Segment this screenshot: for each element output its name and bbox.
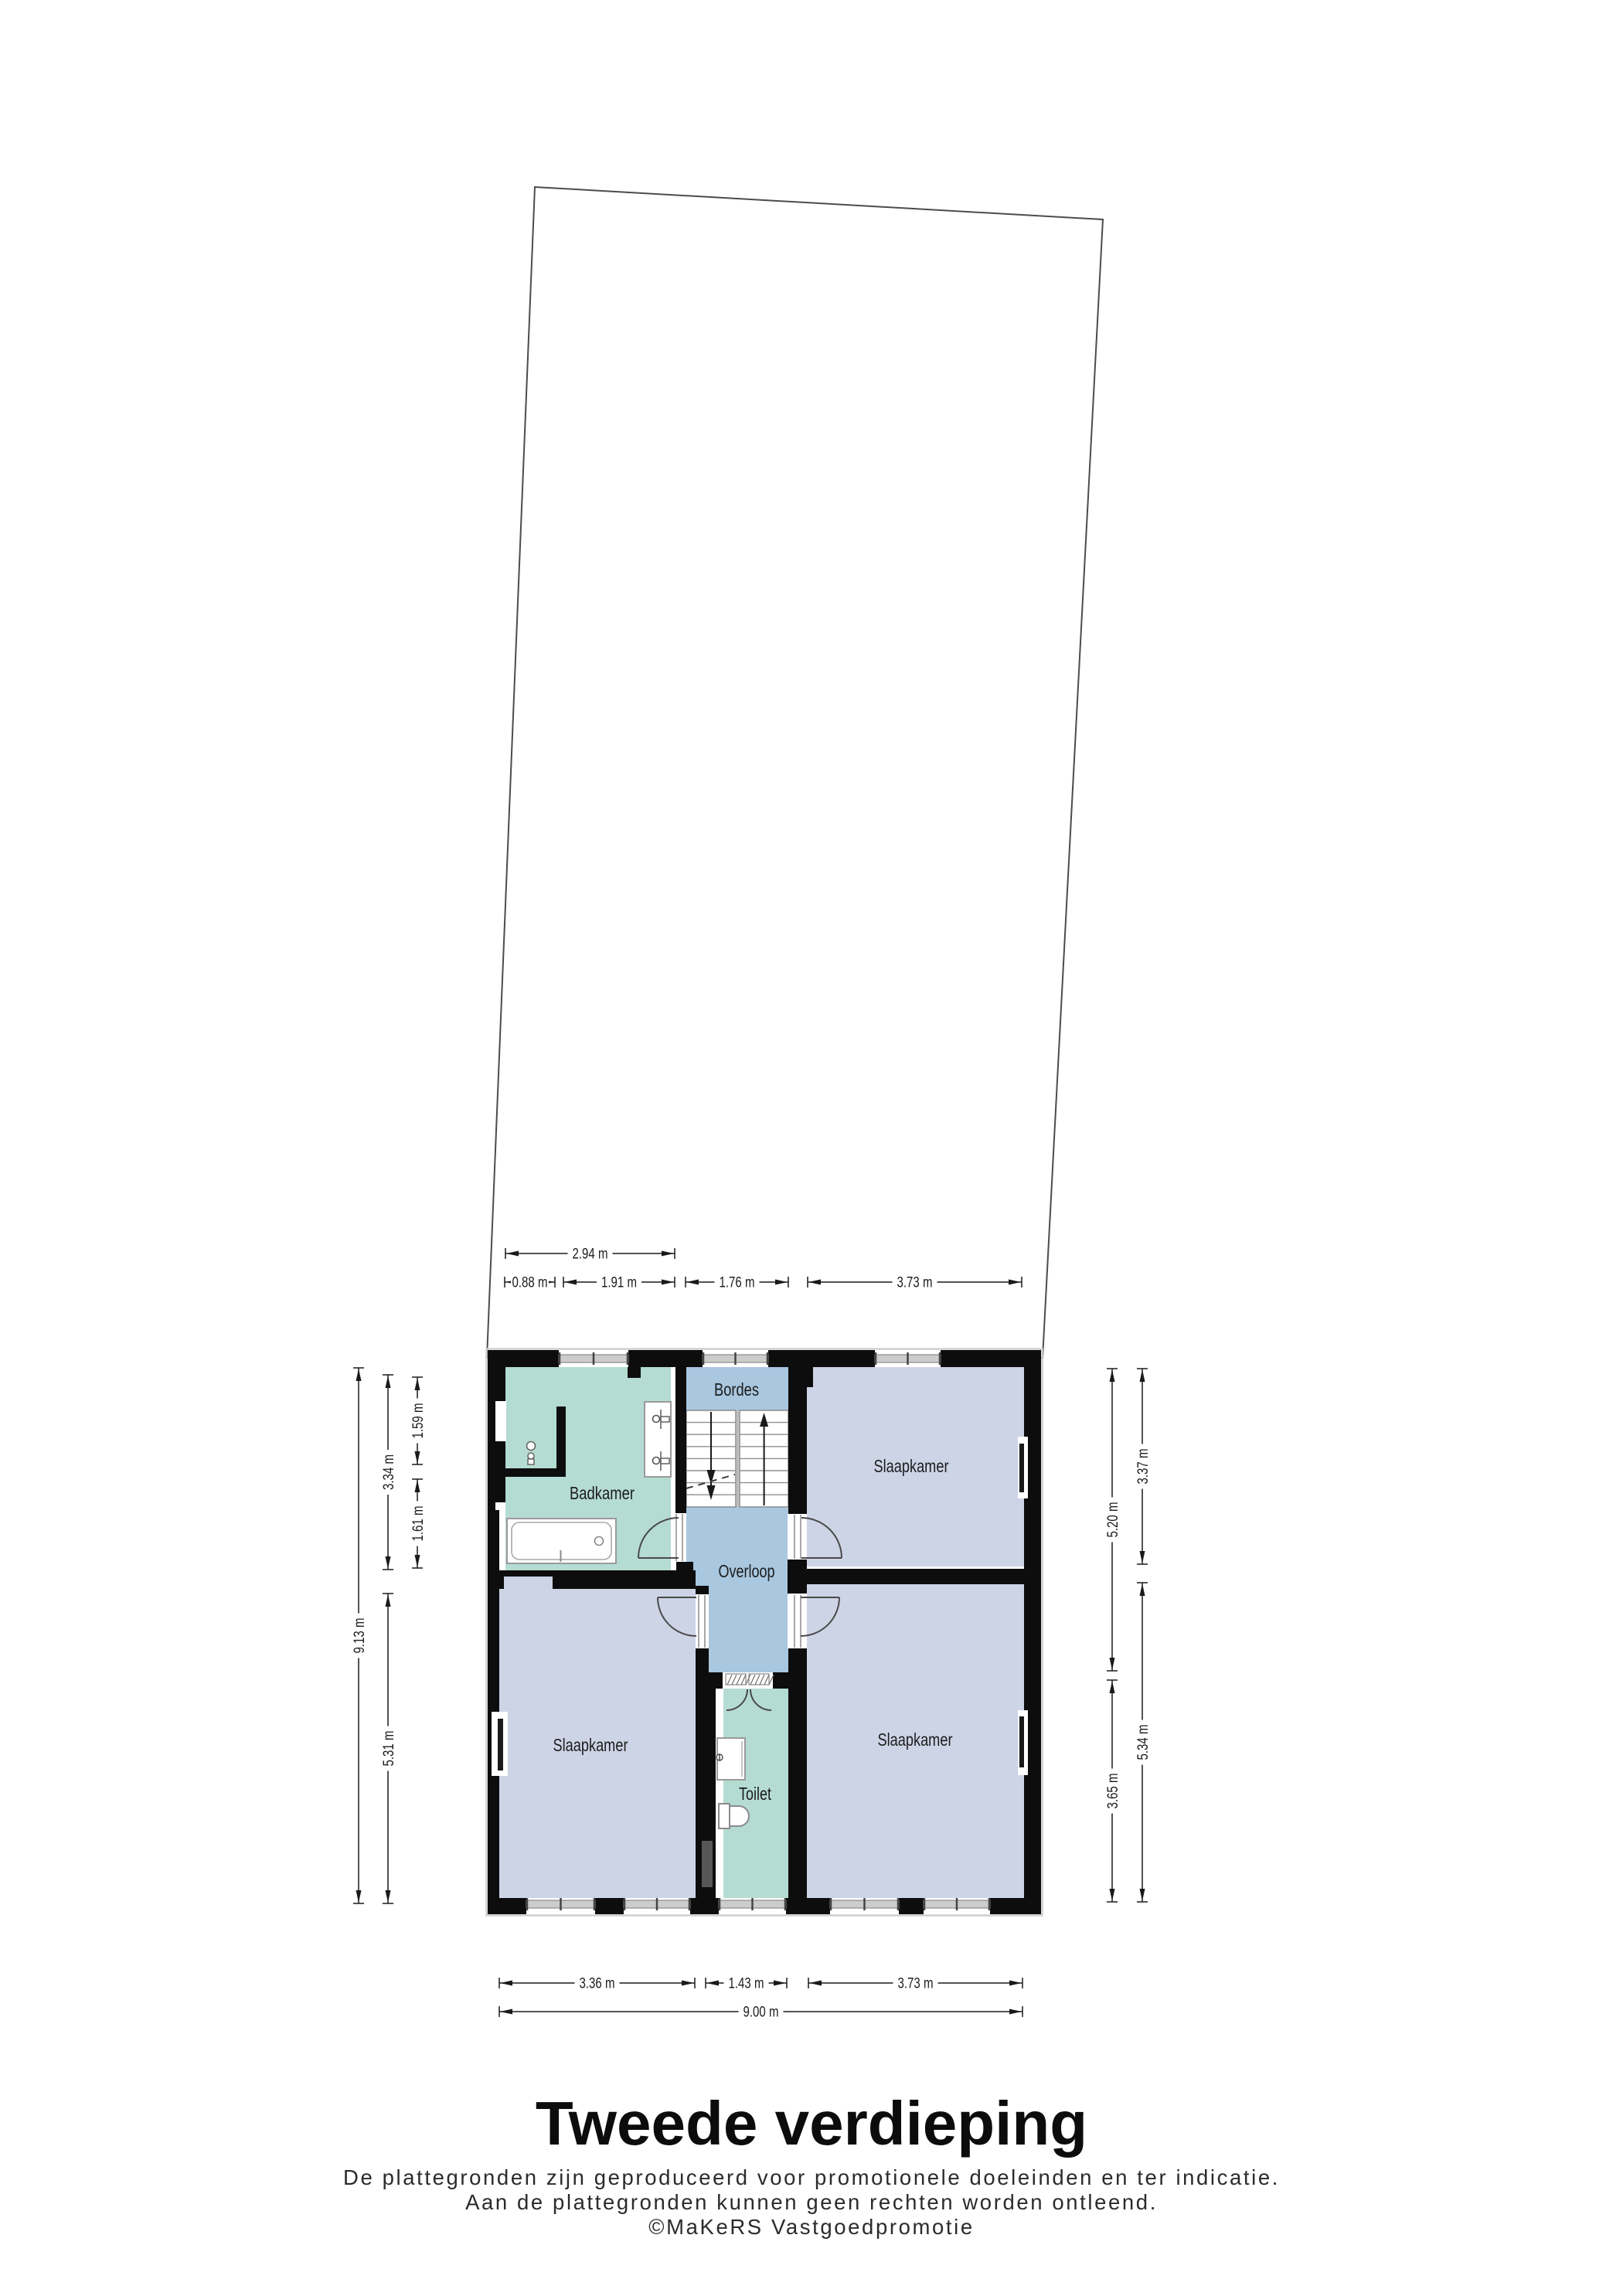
- svg-text:5.20 m: 5.20 m: [1104, 1502, 1121, 1538]
- svg-text:3.36 m: 3.36 m: [580, 1975, 615, 1992]
- svg-text:Toilet: Toilet: [739, 1784, 771, 1804]
- svg-text:Bordes: Bordes: [714, 1379, 759, 1400]
- svg-text:De plattegronden zijn geproduc: De plattegronden zijn geproduceerd voor …: [343, 2165, 1280, 2189]
- svg-text:Tweede verdieping: Tweede verdieping: [536, 2089, 1087, 2158]
- svg-text:3.73 m: 3.73 m: [898, 1975, 934, 1992]
- svg-text:Badkamer: Badkamer: [570, 1483, 635, 1503]
- svg-text:Slaapkamer: Slaapkamer: [874, 1456, 949, 1476]
- svg-text:3.37 m: 3.37 m: [1135, 1449, 1152, 1485]
- svg-text:5.34 m: 5.34 m: [1135, 1725, 1152, 1760]
- svg-text:1.59 m: 1.59 m: [410, 1403, 427, 1439]
- svg-text:0.88 m: 0.88 m: [512, 1274, 548, 1291]
- svg-text:Overloop: Overloop: [719, 1561, 775, 1581]
- svg-text:1.61 m: 1.61 m: [410, 1506, 427, 1542]
- svg-text:3.65 m: 3.65 m: [1104, 1774, 1121, 1809]
- svg-text:9.00 m: 9.00 m: [743, 2004, 779, 2021]
- svg-text:3.73 m: 3.73 m: [897, 1274, 933, 1291]
- svg-text:2.94 m: 2.94 m: [573, 1246, 608, 1263]
- svg-text:9.13 m: 9.13 m: [351, 1618, 368, 1654]
- svg-text:1.76 m: 1.76 m: [720, 1274, 755, 1291]
- svg-text:Aan de plattegronden kunnen ge: Aan de plattegronden kunnen geen rechten…: [465, 2190, 1158, 2214]
- svg-text:Slaapkamer: Slaapkamer: [878, 1730, 953, 1750]
- svg-text:5.31 m: 5.31 m: [380, 1731, 397, 1767]
- svg-text:Slaapkamer: Slaapkamer: [553, 1735, 628, 1755]
- svg-text:1.43 m: 1.43 m: [729, 1975, 764, 1992]
- svg-text:3.34 m: 3.34 m: [380, 1454, 397, 1490]
- svg-text:1.91 m: 1.91 m: [601, 1274, 637, 1291]
- svg-text:©MaKeRS Vastgoedpromotie: ©MaKeRS Vastgoedpromotie: [648, 2215, 975, 2239]
